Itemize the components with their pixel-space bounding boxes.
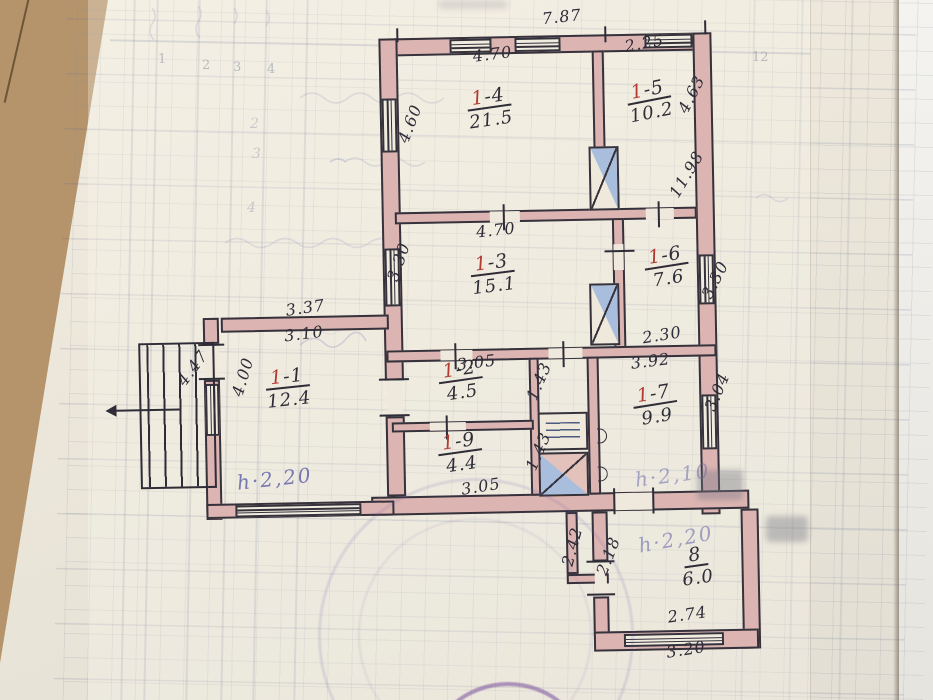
ink-smudge bbox=[697, 470, 743, 500]
dimension-label: 2.74 bbox=[666, 602, 708, 626]
door-tick bbox=[379, 378, 409, 381]
room-label-1-7: 1-7 9.9 bbox=[620, 379, 690, 433]
door-opening bbox=[548, 348, 582, 359]
window-symbol bbox=[514, 37, 560, 52]
stove-icon bbox=[588, 146, 619, 211]
ink-smudge bbox=[766, 516, 808, 542]
dimension-tick bbox=[604, 26, 606, 42]
dimension-label: 7.87 bbox=[541, 5, 582, 28]
scanned-floor-plan-photo: 1 2 3 4 12 2 3 4 bbox=[0, 0, 933, 700]
dimension-label: 4.70 bbox=[472, 42, 514, 66]
window-symbol bbox=[382, 98, 398, 152]
dimension-tick bbox=[704, 20, 706, 34]
door-swing-arc bbox=[598, 466, 608, 481]
dimension-label: 4.70 bbox=[475, 218, 516, 241]
door-tick bbox=[658, 201, 660, 227]
stove-icon bbox=[538, 452, 589, 497]
room-label-1-1: 1-1 12.4 bbox=[254, 363, 322, 414]
door-tick bbox=[562, 341, 564, 367]
entrance-arrow-icon bbox=[105, 405, 116, 417]
dimension-label: 4.00 bbox=[228, 355, 258, 398]
dimension-label: 3.10 bbox=[283, 322, 325, 346]
room-label-1-3: 1-3 15.1 bbox=[458, 249, 527, 301]
dimension-tick bbox=[396, 28, 398, 42]
door-opening bbox=[387, 382, 403, 414]
door-opening bbox=[613, 244, 623, 270]
dimension-label: 2.30 bbox=[641, 322, 683, 347]
door-tick bbox=[604, 250, 634, 253]
ink-smudge bbox=[438, 0, 508, 9]
door-swing-arc bbox=[597, 428, 607, 443]
room-label-1-6: 1-6 7.6 bbox=[632, 240, 702, 294]
door-tick bbox=[380, 414, 410, 417]
dimension-label: 3.92 bbox=[630, 349, 672, 373]
room-label-1-5: 1-5 10.2 bbox=[614, 74, 685, 129]
door-opening bbox=[615, 492, 653, 510]
room-label-1-4: 1-4 21.5 bbox=[455, 82, 525, 135]
ceiling-height-note: h·2,20 bbox=[236, 463, 314, 495]
room-label-1-9: 1-9 4.4 bbox=[426, 427, 496, 480]
dimension-label: 1.43 bbox=[522, 359, 555, 403]
stove-icon bbox=[589, 283, 620, 346]
room-area: 6.0 bbox=[665, 563, 731, 593]
window-symbol bbox=[235, 503, 361, 517]
wall bbox=[203, 318, 219, 344]
